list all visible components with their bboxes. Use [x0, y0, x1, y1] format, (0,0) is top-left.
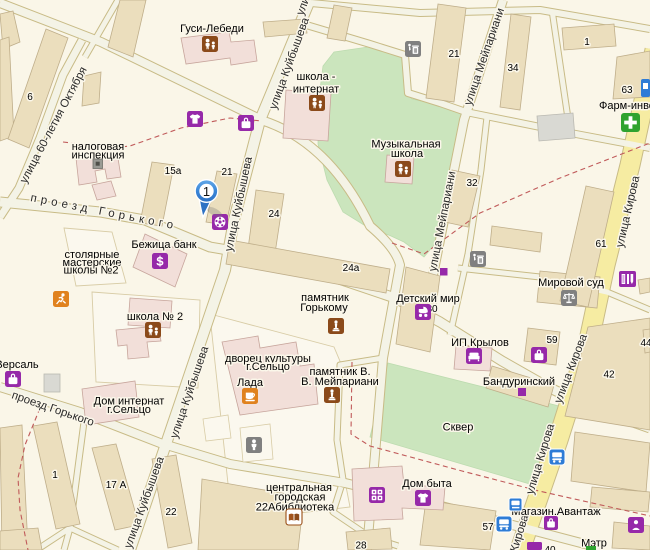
svg-text:Фарм-инве: Фарм-инве	[599, 100, 650, 112]
svg-text:28: 28	[355, 541, 367, 550]
svg-text:24: 24	[268, 209, 280, 220]
svg-text:1: 1	[203, 184, 210, 199]
svg-text:1: 1	[52, 470, 58, 481]
svg-text:школа -: школа -	[297, 71, 336, 83]
svg-text:Горькому: Горькому	[300, 302, 348, 314]
svg-text:6: 6	[27, 92, 33, 103]
svg-text:г.Сельцо: г.Сельцо	[107, 404, 151, 416]
svg-text:Бежица банк: Бежица банк	[131, 239, 196, 251]
svg-text:Гуси-Лебеди: Гуси-Лебеди	[180, 23, 244, 35]
svg-text:21: 21	[221, 167, 233, 178]
svg-text:15а: 15а	[165, 166, 182, 177]
svg-text:Бандуринский: Бандуринский	[483, 376, 555, 388]
svg-text:22: 22	[165, 507, 177, 518]
svg-text:61: 61	[595, 239, 607, 250]
svg-text:40: 40	[544, 545, 556, 550]
svg-text:Лада: Лада	[237, 377, 264, 389]
svg-text:Версаль: Версаль	[0, 359, 39, 371]
svg-text:57: 57	[482, 522, 494, 533]
svg-text:интернат: интернат	[293, 84, 339, 96]
svg-text:Сквер: Сквер	[443, 422, 474, 434]
svg-text:Мировой суд: Мировой суд	[538, 277, 604, 289]
svg-text:г.Сельцо: г.Сельцо	[246, 361, 290, 373]
svg-text:59: 59	[546, 335, 558, 346]
svg-text:21: 21	[448, 49, 460, 60]
svg-text:63: 63	[621, 85, 633, 96]
svg-text:44: 44	[640, 338, 650, 349]
svg-text:школа: школа	[391, 148, 424, 160]
svg-text:ИП Крылов: ИП Крылов	[451, 337, 509, 349]
svg-text:34: 34	[507, 63, 519, 74]
svg-text:17 А: 17 А	[106, 480, 127, 491]
svg-text:В. Мейпариани: В. Мейпариани	[301, 376, 379, 388]
svg-text:Дом быта: Дом быта	[402, 478, 452, 490]
svg-text:42: 42	[603, 370, 615, 381]
svg-text:школы №2: школы №2	[64, 265, 119, 277]
svg-text:24а: 24а	[343, 263, 360, 274]
svg-text:1: 1	[584, 37, 590, 48]
svg-text:32: 32	[466, 178, 478, 189]
svg-text:школа № 2: школа № 2	[127, 311, 183, 323]
